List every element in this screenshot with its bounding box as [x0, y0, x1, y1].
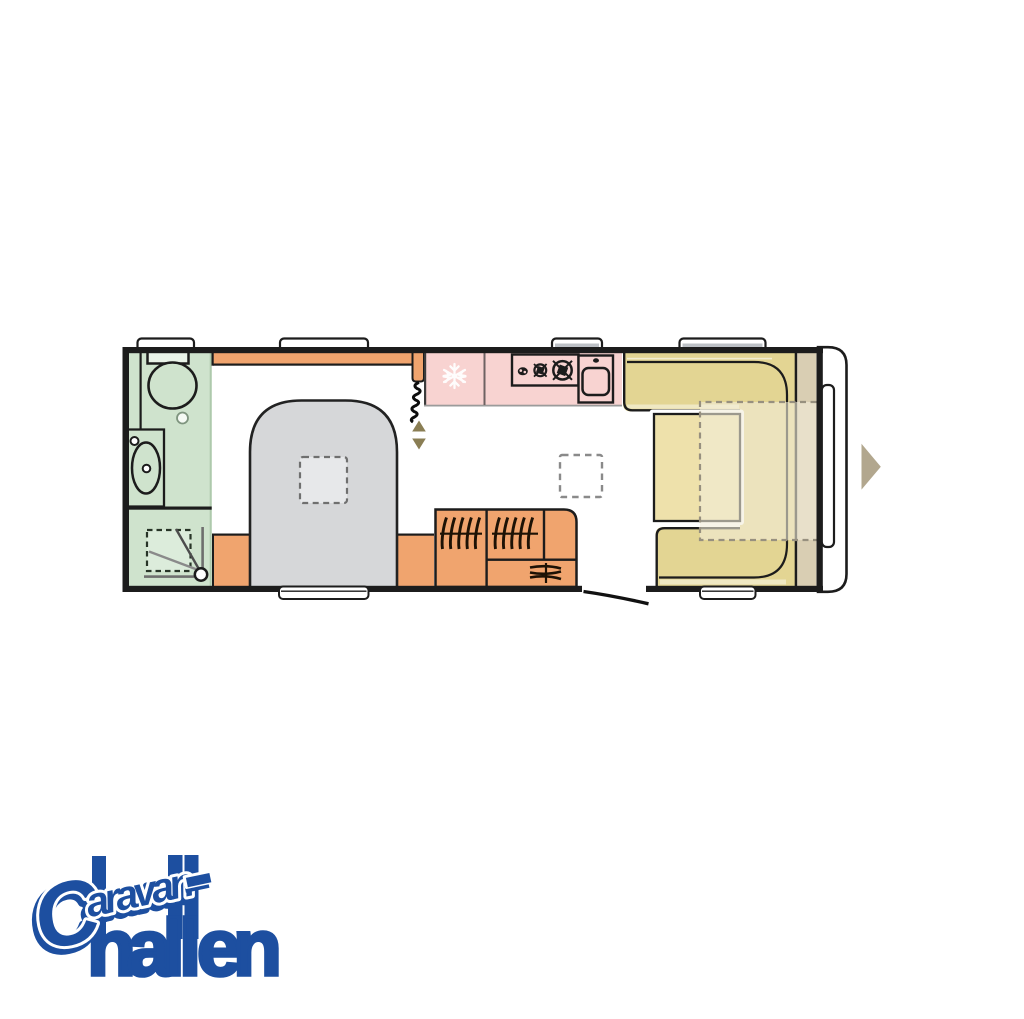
svg-text:n: n — [233, 903, 282, 992]
